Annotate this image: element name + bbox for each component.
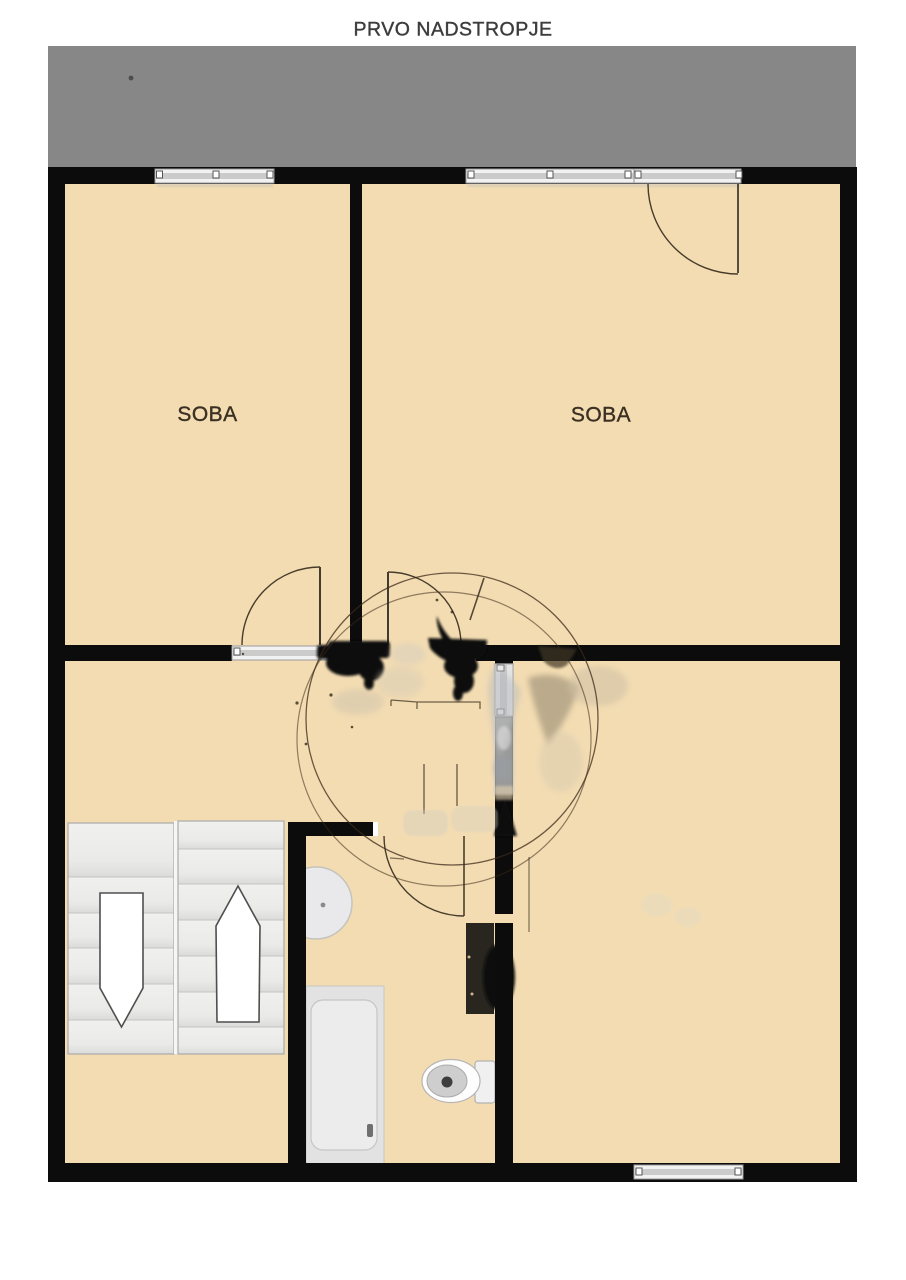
svg-text:PRVO NADSTROPJE: PRVO NADSTROPJE: [354, 19, 553, 41]
svg-text:SOBA: SOBA: [177, 403, 237, 426]
svg-text:SOBA: SOBA: [571, 404, 631, 427]
